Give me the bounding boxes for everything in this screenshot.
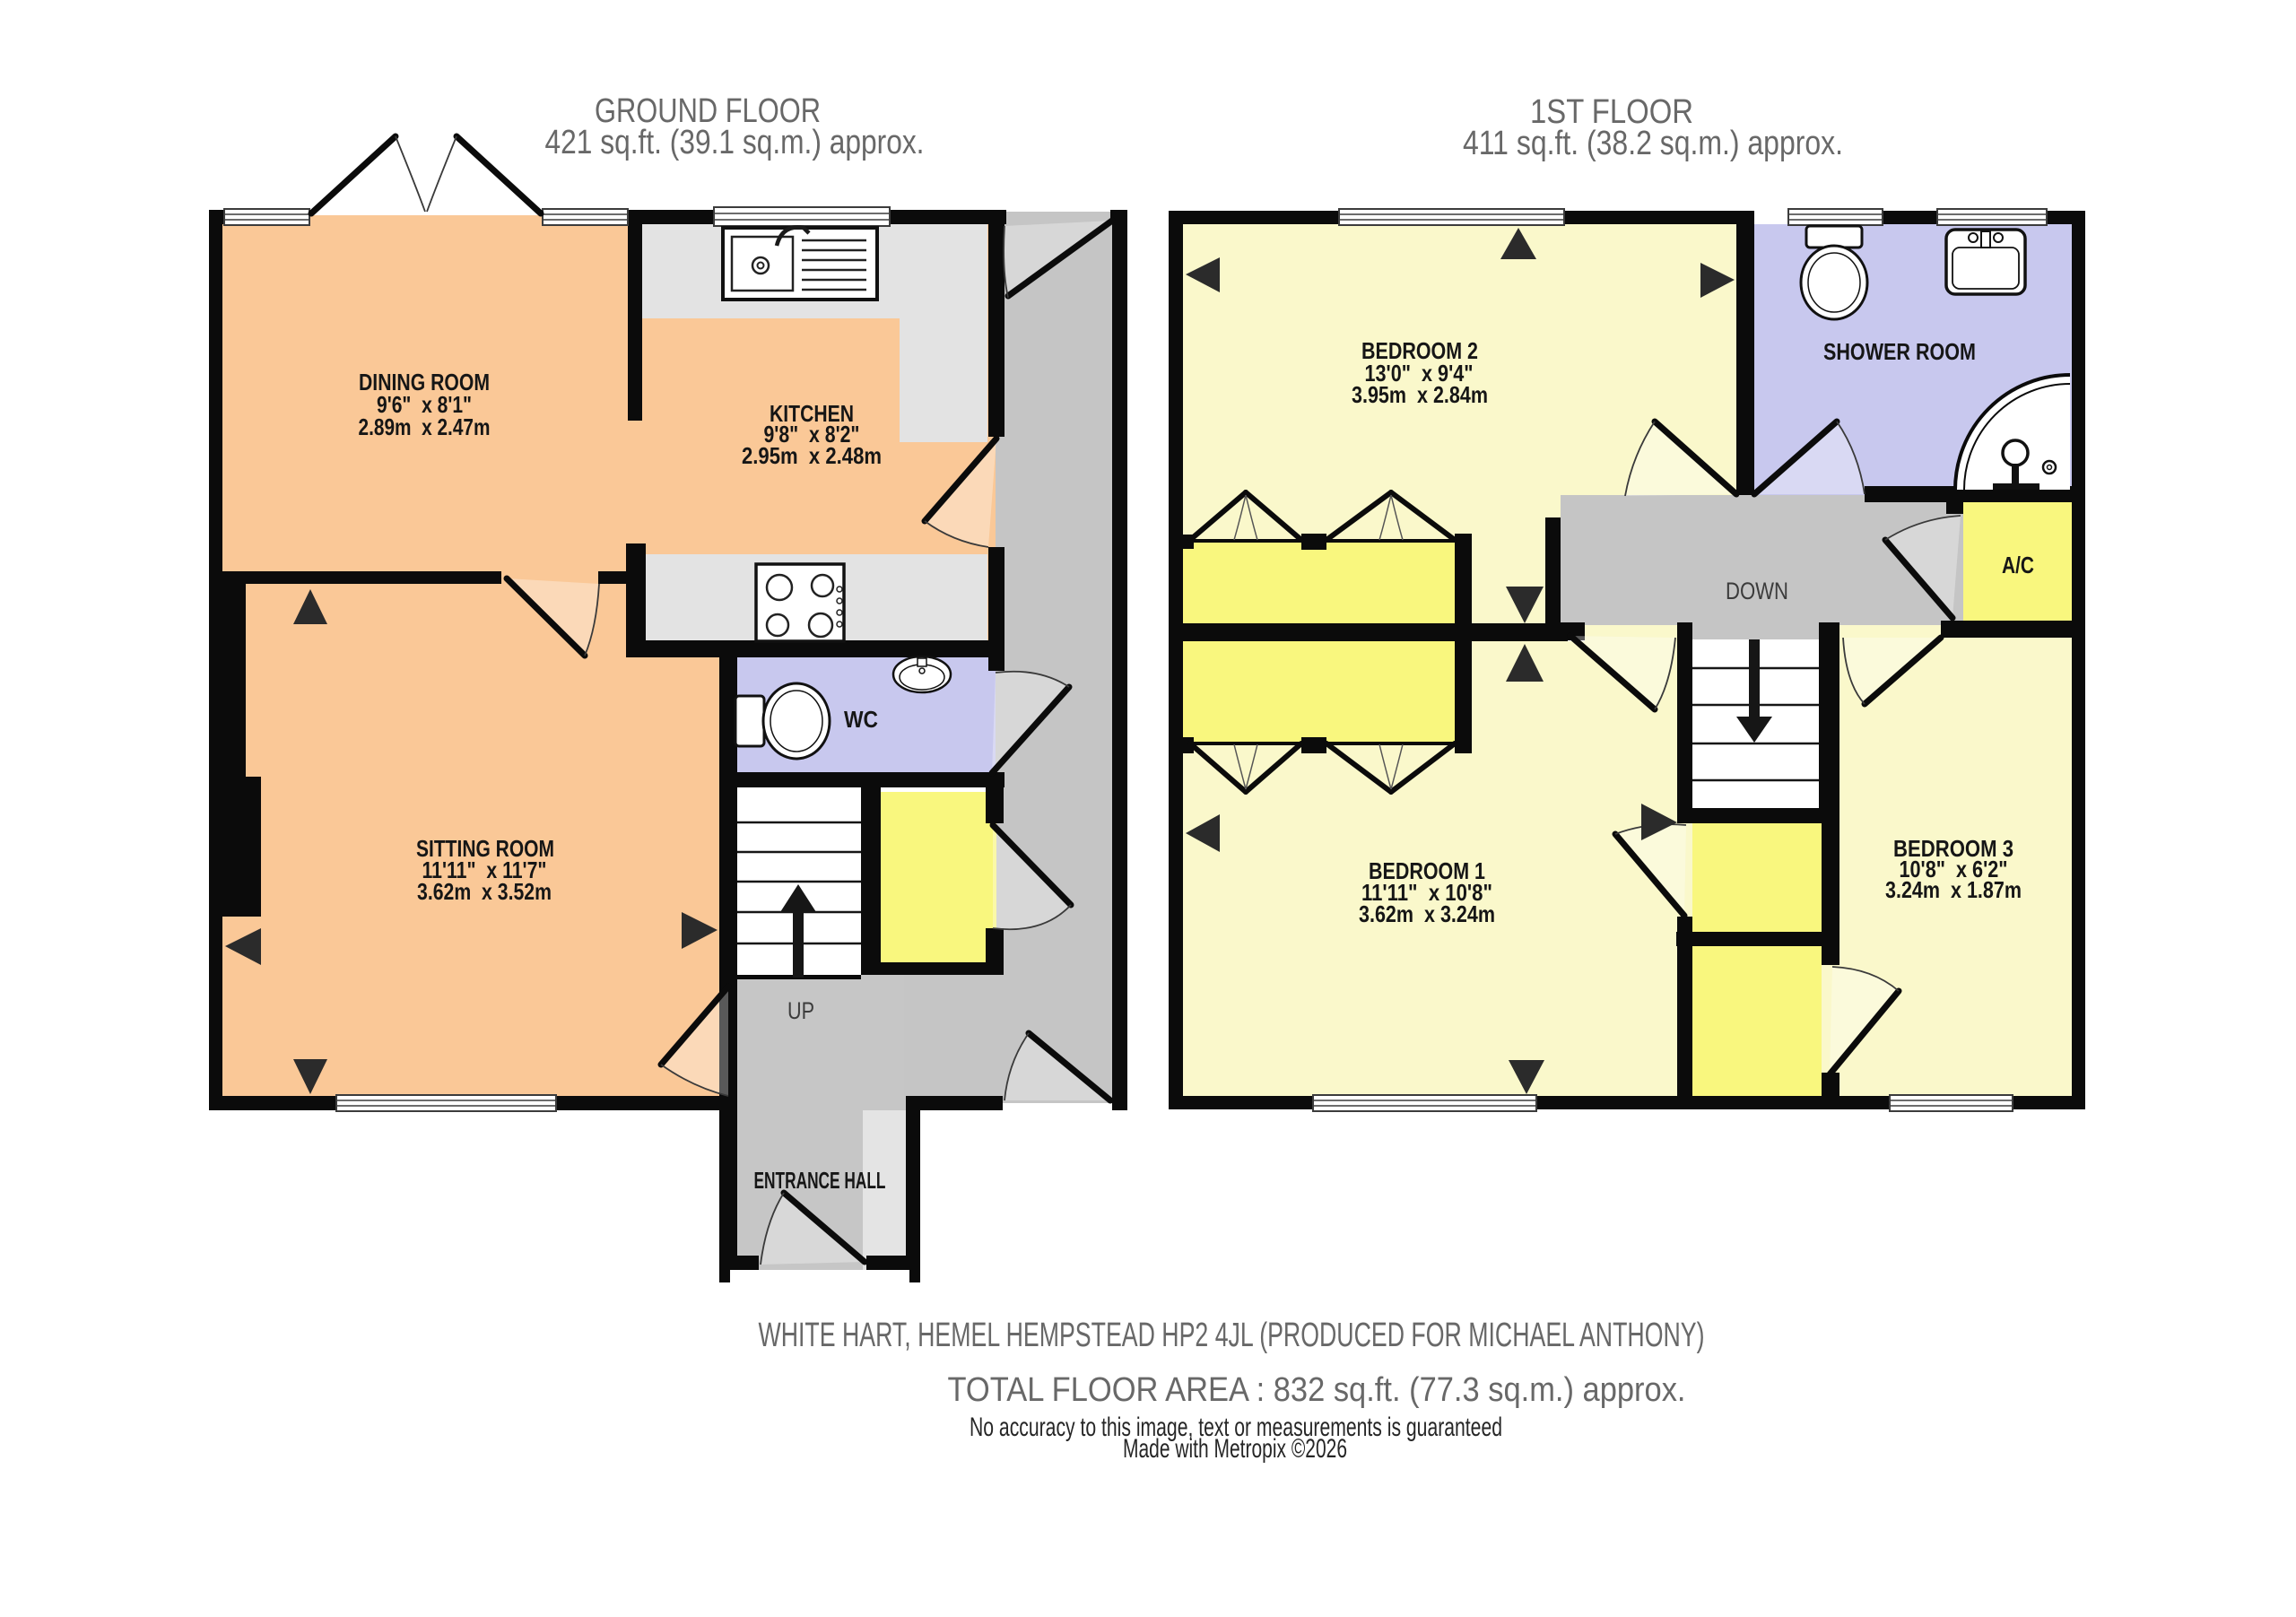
svg-text:WC: WC (844, 706, 878, 733)
svg-text:2.95m x 2.48m: 2.95m x 2.48m (742, 442, 882, 469)
svg-text:3.24m x 1.87m: 3.24m x 1.87m (1885, 876, 2022, 903)
svg-text:3.95m x 2.84m: 3.95m x 2.84m (1352, 381, 1488, 408)
svg-text:TOTAL FLOOR AREA : 832 sq.ft.: TOTAL FLOOR AREA : 832 sq.ft. (77.3 sq.m… (948, 1371, 1686, 1409)
svg-text:3.62m x 3.24m: 3.62m x 3.24m (1359, 900, 1495, 927)
svg-text:DOWN: DOWN (1726, 578, 1788, 604)
svg-text:421 sq.ft. (39.1 sq.m.) approx: 421 sq.ft. (39.1 sq.m.) approx. (545, 124, 925, 161)
svg-text:WHITE HART, HEMEL HEMPSTEAD HP: WHITE HART, HEMEL HEMPSTEAD HP2 4JL (PRO… (759, 1317, 1705, 1354)
svg-text:UP: UP (787, 997, 814, 1024)
svg-text:2.89m x 2.47m: 2.89m x 2.47m (359, 413, 491, 440)
svg-text:SHOWER ROOM: SHOWER ROOM (1823, 338, 1976, 365)
svg-text:Made with Metropix ©2026: Made with Metropix ©2026 (1123, 1434, 1347, 1464)
svg-text:3.62m x 3.52m: 3.62m x 3.52m (417, 878, 552, 905)
svg-text:411 sq.ft. (38.2 sq.m.) approx: 411 sq.ft. (38.2 sq.m.) approx. (1463, 125, 1843, 162)
svg-text:A/C: A/C (2002, 552, 2034, 578)
svg-text:ENTRANCE HALL: ENTRANCE HALL (754, 1167, 886, 1194)
